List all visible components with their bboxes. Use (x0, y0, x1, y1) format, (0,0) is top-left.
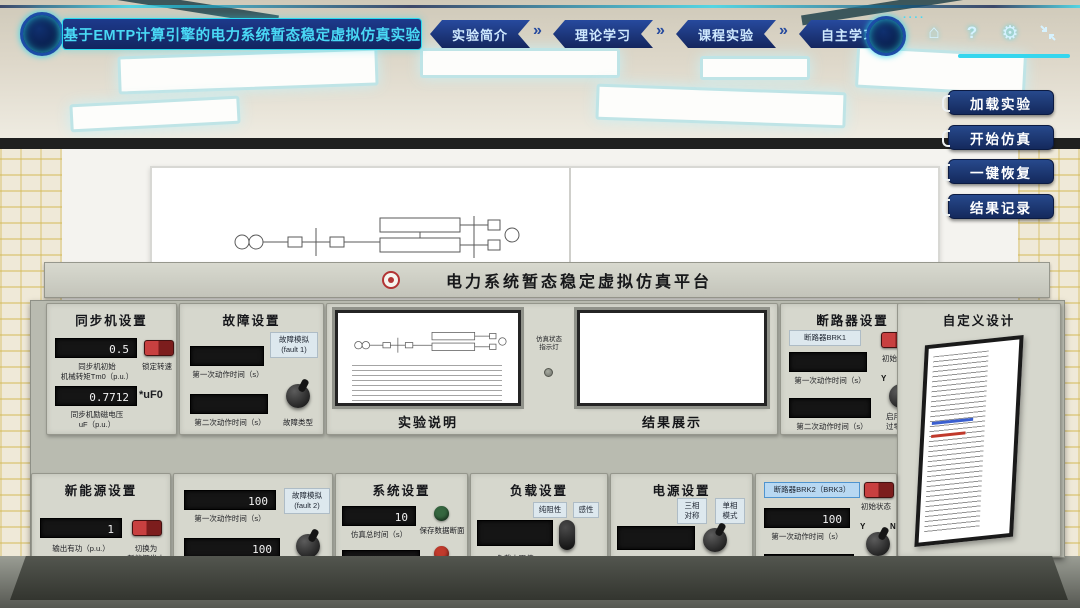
load-experiment-button[interactable]: 加载实验 (948, 90, 1054, 115)
result-display-screen (577, 310, 767, 406)
fault1-type-label: 故障类型 (274, 418, 322, 428)
power-single-phase-tag: 单相 模式 (715, 498, 745, 524)
breaker2-zero-cross-knob[interactable] (866, 532, 890, 556)
fault1-time1-display[interactable] (190, 346, 264, 366)
sim-total-time-display[interactable]: 10 (342, 506, 416, 526)
breaker1-tag: 断路器BRK1 (789, 330, 861, 346)
sim-total-time-label: 仿真总时间（s） (336, 530, 422, 540)
power-system-schematic (230, 208, 530, 264)
secondary-emblem (866, 16, 906, 56)
new-energy-power-display[interactable]: 1 (40, 518, 122, 538)
panel-title: 故障设置 (180, 310, 323, 329)
sim-status-indicator-label: 仿真状态 指示灯 (527, 336, 571, 353)
fault1-tag: 故障模拟 (fault 1) (270, 332, 318, 358)
wall-ledge (0, 138, 1080, 149)
fault1-time2-display[interactable] (190, 394, 268, 414)
power-phase-knob[interactable] (703, 528, 727, 552)
tab-course-experiment[interactable]: 课程实验 (676, 20, 776, 48)
save-snapshot-button[interactable] (434, 506, 449, 521)
power-three-phase-tag: 三相 对称 (677, 498, 707, 524)
one-key-restore-button[interactable]: 一键恢复 (948, 159, 1054, 184)
screens-deck: 实验说明 仿真状态 指示灯 结果展示 (326, 303, 778, 435)
panel-title: 新能源设置 (32, 480, 170, 499)
sync-excitation-label: 同步机励磁电压 uF（p.u.） (51, 410, 143, 430)
breaker1-time1-display[interactable] (789, 352, 867, 372)
panel-title: 自定义设计 (898, 310, 1060, 329)
lock-speed-switch[interactable] (144, 340, 174, 356)
fault1-type-knob[interactable] (286, 384, 310, 408)
tab-theory-learning[interactable]: 理论学习 (553, 20, 653, 48)
fault2-time1-label: 第一次动作时间（s） (178, 514, 282, 524)
panel-title: 系统设置 (336, 480, 467, 499)
sim-status-indicator-light (544, 368, 553, 377)
breaker1-knob-y-mark: Y (881, 374, 886, 383)
fault2-time2-display[interactable]: 100 (184, 538, 280, 558)
fault2-time1-display[interactable]: 100 (184, 490, 276, 510)
panel-title: 电源设置 (611, 480, 752, 499)
tab-label: 理论学习 (575, 25, 631, 44)
fault2-type-knob[interactable] (296, 534, 320, 558)
sync-torque-display[interactable]: 0.5 (55, 338, 137, 358)
console-title-plate: 电力系统暂态稳定虚拟仿真平台 (44, 262, 1050, 298)
breaker2-tag: 断路器BRK2（BRK3） (764, 482, 860, 498)
help-icon[interactable]: ? (956, 18, 988, 48)
experiment-schematic (352, 325, 512, 359)
fault1-time2-label: 第二次动作时间（s） (182, 418, 278, 428)
console-title: 电力系统暂态稳定虚拟仿真平台 (446, 268, 712, 292)
result-screen-label: 结果展示 (577, 412, 767, 431)
breaker2-initial-state-label: 初始状态 (854, 502, 898, 512)
breaker2-knob-y-mark: Y (860, 522, 865, 531)
fault1-time1-label: 第一次动作时间（s） (182, 370, 274, 380)
university-emblem-icon (382, 271, 400, 289)
uf0-label: *uF0 (139, 388, 177, 402)
breaker2-time1-label: 第一次动作时间（s） (758, 532, 856, 542)
experiment-text-lines (352, 365, 502, 401)
console-base (10, 556, 1068, 600)
nav-chevron-separator: » (533, 22, 540, 40)
load-inductive-tag: 感性 (573, 502, 599, 518)
panel-fault-settings: 故障设置 故障模拟 (fault 1) 第一次动作时间（s） 第二次动作时间（s… (179, 303, 324, 435)
breaker1-time1-label: 第一次动作时间（s） (783, 376, 877, 386)
breaker2-knob-n-mark: N (890, 522, 896, 531)
iconbar-underline (958, 54, 1070, 58)
tab-label: 课程实验 (698, 25, 754, 44)
screen-divider (569, 168, 571, 266)
app-window: 基于EMTP计算引擎的电力系统暂态稳定虚拟仿真实验 实验简介 » 理论学习 » … (0, 0, 1080, 608)
nav-chevron-separator: » (656, 22, 663, 40)
load-resistance-display[interactable] (477, 520, 553, 546)
control-console: 电力系统暂态稳定虚拟仿真平台 同步机设置 0.5 同步机初始 机械转矩Tm0（p… (30, 262, 1065, 558)
load-type-toggle[interactable] (559, 520, 575, 550)
breaker2-time1-display[interactable]: 100 (764, 508, 850, 528)
topbar-glow-line (0, 5, 1080, 8)
lock-speed-label: 锁定转速 (137, 362, 177, 372)
settings-icon[interactable]: ⚙ (994, 18, 1026, 48)
app-title: 基于EMTP计算引擎的电力系统暂态稳定虚拟仿真实验 (63, 24, 420, 45)
fault2-tag: 故障模拟 (fault 2) (284, 488, 330, 514)
power-voltage-display[interactable] (617, 526, 695, 550)
breaker1-time2-display[interactable] (789, 398, 871, 418)
new-energy-power-label: 输出有功（p.u.） (34, 544, 128, 554)
wall-projection-screen (150, 166, 940, 268)
sync-torque-label: 同步机初始 机械转矩Tm0（p.u.） (51, 362, 143, 382)
panel-title: 负载设置 (471, 480, 607, 499)
breaker1-time2-label: 第二次动作时间（s） (783, 422, 881, 432)
code-lines (924, 350, 990, 534)
nav-chevron-separator: » (779, 22, 786, 40)
panel-title: 同步机设置 (47, 310, 176, 329)
save-snapshot-label: 保存数据断面 (418, 526, 466, 536)
app-title-plate: 基于EMTP计算引擎的电力系统暂态稳定虚拟仿真实验 (62, 18, 422, 50)
panel-sync-machine: 同步机设置 0.5 同步机初始 机械转矩Tm0（p.u.） 锁定转速 0.771… (46, 303, 177, 435)
app-logo-emblem (20, 12, 64, 56)
new-energy-switch[interactable] (132, 520, 162, 536)
home-icon[interactable]: ⌂ (918, 18, 950, 48)
console-body: 同步机设置 0.5 同步机初始 机械转矩Tm0（p.u.） 锁定转速 0.771… (30, 300, 1065, 558)
result-record-button[interactable]: 结果记录 (948, 194, 1054, 219)
tab-label: 实验简介 (452, 25, 508, 44)
experiment-screen-label: 实验说明 (335, 412, 521, 431)
start-simulation-button[interactable]: 开始仿真 (948, 125, 1054, 150)
breaker2-initial-state-switch[interactable] (864, 482, 894, 498)
panel-custom-design: 自定义设计 (897, 303, 1061, 557)
tab-experiment-intro[interactable]: 实验简介 (430, 20, 530, 48)
load-resistive-tag: 纯阻性 (533, 502, 567, 518)
experiment-description-screen (335, 310, 521, 406)
fullscreen-icon[interactable] (1032, 18, 1064, 48)
sync-excitation-display[interactable]: 0.7712 (55, 386, 137, 406)
custom-design-screen (914, 335, 1023, 547)
topbar: 基于EMTP计算引擎的电力系统暂态稳定虚拟仿真实验 实验简介 » 理论学习 » … (0, 10, 1080, 58)
